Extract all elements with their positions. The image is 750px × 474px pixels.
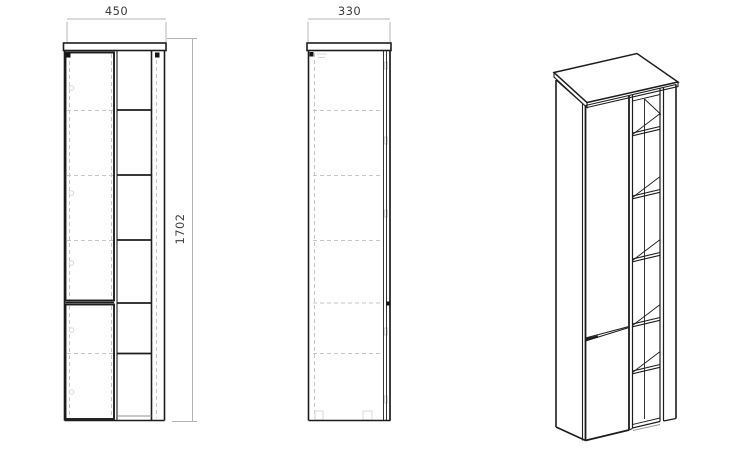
hinge-plate-icon <box>385 396 388 403</box>
hinge-icon <box>310 52 314 57</box>
technical-drawing-page: 450 1702 <box>0 0 750 474</box>
hinge-plate-icon <box>385 62 388 69</box>
foot-icon <box>363 411 372 420</box>
cabinet-technical-drawing: 450 1702 <box>0 0 750 474</box>
side-depth-dimension-lines <box>308 19 390 42</box>
shelves-3d <box>633 114 661 374</box>
front-doors <box>66 53 115 420</box>
depth-dimension-label: 330 <box>338 4 361 18</box>
left-side-panel-3d <box>556 80 586 441</box>
hinge-plate-icon <box>385 210 388 217</box>
shelf-column-3d <box>629 85 676 429</box>
front-width-dimension-lines <box>67 19 166 42</box>
door-gap-line-3d <box>586 327 630 339</box>
door-gap-mark <box>386 302 391 306</box>
side-hidden-lines <box>313 53 382 418</box>
bottom-edges-3d <box>629 418 676 431</box>
perspective-view <box>554 54 678 441</box>
hinge-plate-icon <box>385 328 388 335</box>
front-shelves <box>117 110 152 354</box>
front-view: 450 1702 <box>64 4 198 422</box>
foot-icon <box>315 411 323 420</box>
side-faint-hardware <box>315 54 388 420</box>
side-hinge-icons <box>310 52 391 306</box>
hinge-icon <box>66 53 71 58</box>
side-carcass <box>307 43 391 421</box>
lower-door <box>66 305 115 420</box>
front-hidden-lines <box>67 53 157 418</box>
side-view: 330 <box>307 4 391 421</box>
hinge-plate-icon <box>385 137 388 144</box>
width-dimension-label: 450 <box>105 4 128 18</box>
doors-3d <box>586 96 630 441</box>
height-dimension-label: 1702 <box>173 214 187 245</box>
hinge-icon <box>155 53 160 58</box>
